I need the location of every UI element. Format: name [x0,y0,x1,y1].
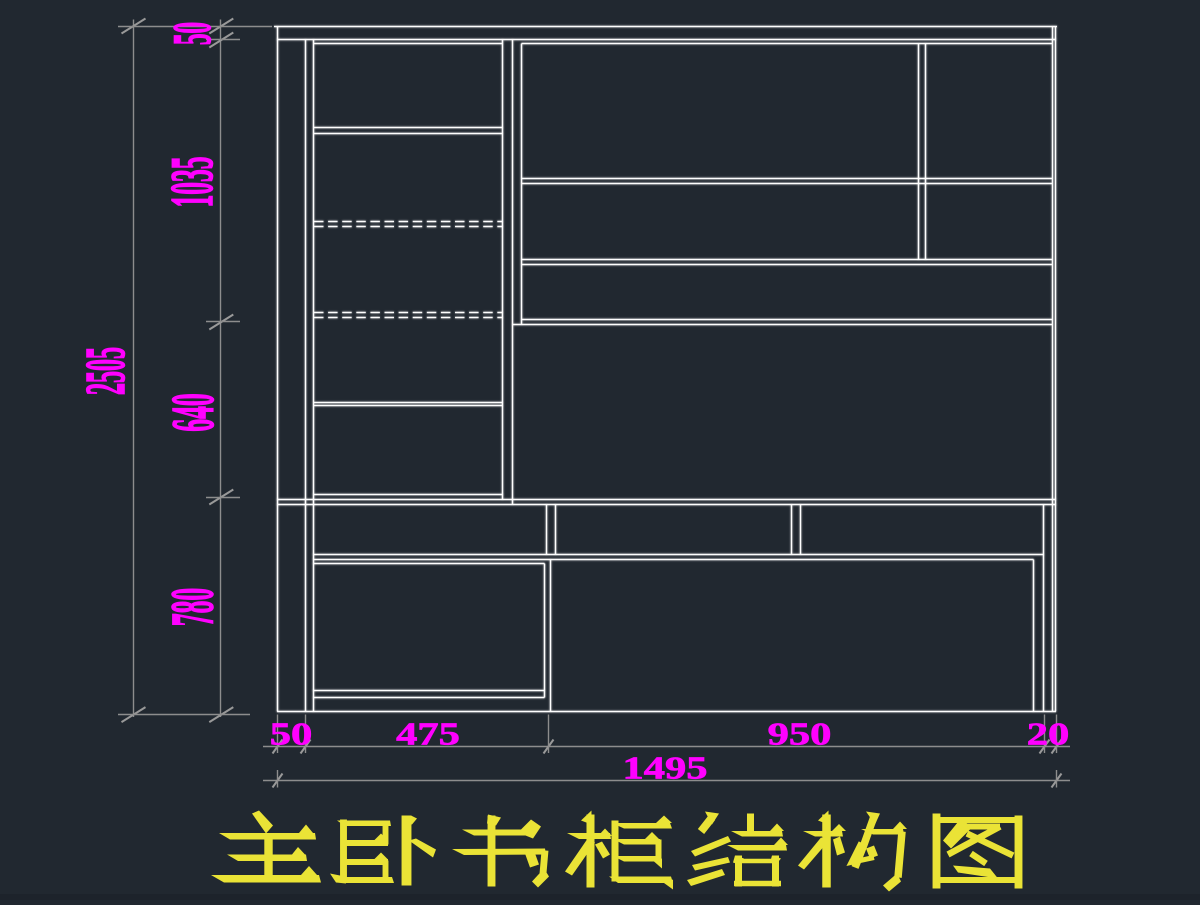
svg-text:1495: 1495 [622,750,707,786]
svg-text:50: 50 [162,22,222,45]
svg-text:20: 20 [1027,716,1070,752]
svg-text:2505: 2505 [75,347,137,395]
svg-text:1035: 1035 [159,157,225,208]
svg-text:640: 640 [160,393,226,431]
svg-text:50: 50 [270,716,313,752]
svg-text:475: 475 [396,716,460,752]
svg-text:950: 950 [768,716,832,752]
svg-text:780: 780 [159,588,225,626]
